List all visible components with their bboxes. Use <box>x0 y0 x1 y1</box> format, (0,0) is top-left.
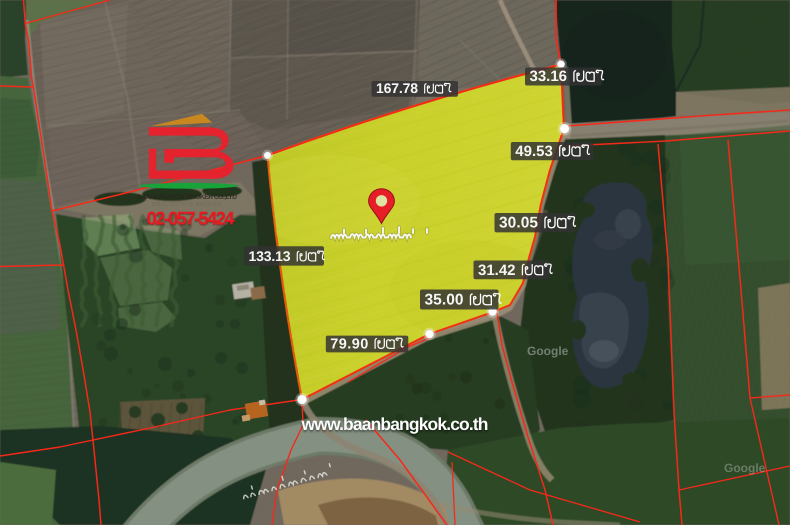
svg-text:79.90: 79.90 <box>330 336 368 352</box>
svg-text:02-057-5424: 02-057-5424 <box>147 208 236 229</box>
svg-text:Google: Google <box>527 344 569 358</box>
svg-text:BAANBANGKOK BROKER CO.,LTD: BAANBANGKOK BROKER CO.,LTD <box>137 194 237 201</box>
svg-text:49.53: 49.53 <box>515 143 553 160</box>
svg-text:30.05: 30.05 <box>499 215 538 232</box>
svg-text:Google: Google <box>724 461 766 475</box>
svg-text:33.16: 33.16 <box>530 68 568 85</box>
svg-text:www.baanbangkok.co.th: www.baanbangkok.co.th <box>301 414 489 434</box>
svg-text:167.78: 167.78 <box>376 80 418 96</box>
svg-text:31.42: 31.42 <box>478 262 516 279</box>
svg-text:35.00: 35.00 <box>425 292 464 309</box>
svg-text:133.13: 133.13 <box>249 248 291 264</box>
